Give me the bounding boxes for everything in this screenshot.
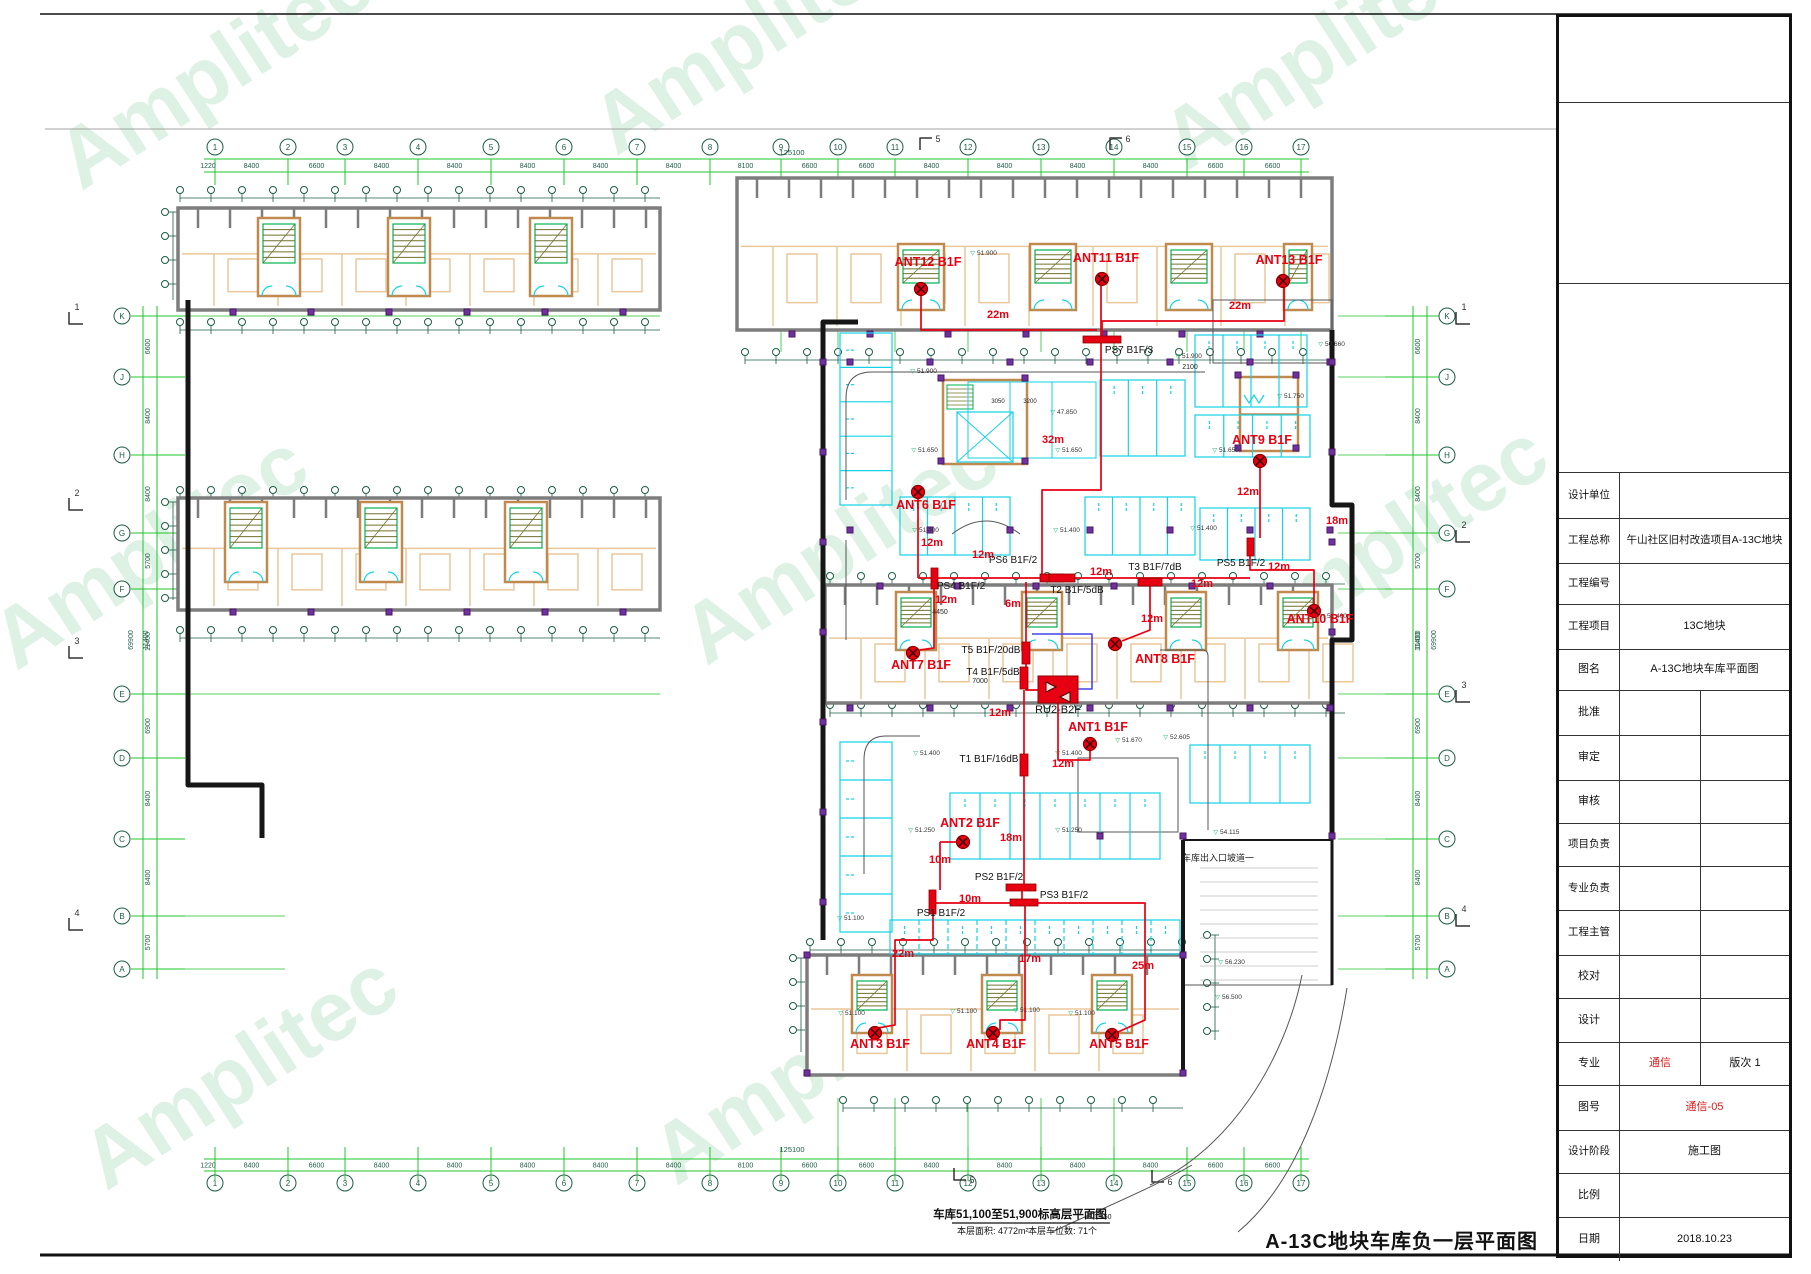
svg-text:6m: 6m (1005, 598, 1021, 610)
svg-text:8400: 8400 (997, 1163, 1013, 1170)
titleblock-label-项目负责: 项目负责 (1559, 823, 1620, 866)
svg-text:51.100: 51.100 (845, 1010, 865, 1017)
svg-text:51.100: 51.100 (957, 1008, 977, 1015)
svg-text:5700: 5700 (145, 935, 152, 951)
svg-text:14: 14 (1110, 143, 1119, 152)
antenna-label: ANT12 B1F (895, 255, 962, 269)
svg-text:13: 13 (1037, 143, 1046, 152)
svg-text:12m: 12m (1268, 561, 1290, 573)
svg-text:12m: 12m (1237, 486, 1259, 498)
svg-text:K: K (119, 312, 125, 321)
svg-text:1220: 1220 (200, 163, 216, 170)
svg-text:2: 2 (1461, 520, 1466, 530)
device-label: PS4 B1F/2 (937, 581, 986, 592)
svg-text:51.400: 51.400 (1062, 750, 1082, 757)
svg-text:G: G (119, 529, 125, 538)
device-PS7: PS7 B1F/3 (1083, 336, 1154, 356)
svg-text:22m: 22m (1229, 300, 1251, 312)
device-label: T4 B1F/5dB (966, 667, 1020, 678)
svg-text:8400: 8400 (520, 1163, 536, 1170)
titleblock-value-批准-1 (1620, 690, 1701, 735)
svg-text:8100: 8100 (738, 163, 754, 170)
titleblock-value-项目负责-2 (1701, 823, 1789, 866)
svg-text:8400: 8400 (145, 870, 152, 886)
svg-text:▽: ▽ (1218, 960, 1223, 966)
svg-text:8400: 8400 (1415, 791, 1422, 807)
device-label: PS6 B1F/2 (989, 555, 1038, 566)
svg-text:6600: 6600 (1265, 163, 1281, 170)
titleblock-value-工程项目: 13C地块 (1620, 604, 1789, 649)
svg-text:51.100: 51.100 (844, 915, 864, 922)
svg-text:12m: 12m (989, 707, 1011, 719)
titleblock-label-工程项目: 工程项目 (1559, 604, 1620, 649)
svg-text:1:150: 1:150 (1094, 1214, 1112, 1221)
svg-text:1220: 1220 (200, 1163, 216, 1170)
titleblock-value-工程总称: 午山社区旧村改造项目A-13C地块 (1620, 518, 1789, 563)
svg-text:69900: 69900 (128, 630, 135, 650)
svg-text:6600: 6600 (1208, 1163, 1224, 1170)
svg-text:125100: 125100 (779, 1145, 804, 1154)
titleblock-label-工程总称: 工程总称 (1559, 518, 1620, 563)
svg-text:3200: 3200 (1023, 399, 1037, 405)
svg-text:10m: 10m (959, 893, 981, 905)
svg-text:6: 6 (1167, 1177, 1172, 1187)
titleblock-value-审定-1 (1620, 735, 1701, 780)
device-label: PS2 B1F/2 (975, 872, 1024, 883)
svg-text:6600: 6600 (1415, 339, 1422, 355)
svg-text:18m: 18m (1000, 832, 1022, 844)
svg-text:1: 1 (1461, 302, 1466, 312)
svg-text:8400: 8400 (924, 163, 940, 170)
titleblock-label-审核: 审核 (1559, 780, 1620, 823)
svg-text:D: D (1444, 754, 1450, 763)
svg-text:47.850: 47.850 (1057, 409, 1077, 416)
svg-text:7: 7 (635, 143, 640, 152)
svg-text:11400: 11400 (1415, 630, 1422, 649)
titleblock-value-设计阶段: 施工图 (1620, 1130, 1789, 1173)
svg-text:6600: 6600 (859, 1163, 875, 1170)
caption-title: 车库51,100至51,900标高层平面图 (933, 1207, 1107, 1221)
titleblock-label-设计单位: 设计单位 (1559, 472, 1620, 518)
svg-text:J: J (1445, 373, 1449, 382)
svg-text:A: A (1444, 965, 1450, 974)
svg-text:4: 4 (74, 908, 79, 918)
antenna-ANT2: ANT2 B1F (940, 816, 1000, 849)
svg-text:8400: 8400 (1143, 1163, 1159, 1170)
svg-text:51.100: 51.100 (1075, 1010, 1095, 1017)
antenna-label: ANT11 B1F (1073, 251, 1139, 265)
svg-text:8400: 8400 (145, 486, 152, 502)
titleblock-value-设计-2 (1701, 998, 1789, 1042)
svg-text:8400: 8400 (447, 163, 463, 170)
svg-text:8400: 8400 (374, 1163, 390, 1170)
svg-text:56.500: 56.500 (1222, 994, 1242, 1001)
svg-text:E: E (1444, 690, 1449, 699)
svg-text:▽: ▽ (908, 828, 913, 834)
titleblock-value-工程主管-2 (1701, 910, 1789, 955)
floor-plan-svg: AmplitecAmplitecAmplitecAmplitecAmplitec… (0, 0, 1811, 1274)
svg-text:11: 11 (891, 143, 900, 152)
svg-text:H: H (1444, 451, 1450, 460)
svg-text:5700: 5700 (1415, 553, 1422, 569)
titleblock-label-日期: 日期 (1559, 1217, 1620, 1261)
svg-text:11400: 11400 (143, 630, 150, 649)
svg-text:51.100: 51.100 (1020, 1007, 1040, 1014)
titleblock-label-专业: 专业 (1559, 1042, 1620, 1085)
titleblock-value-审核-1 (1620, 780, 1701, 823)
device-label: PS5 B1F/2 (1217, 558, 1266, 569)
svg-text:50.660: 50.660 (1325, 341, 1345, 348)
svg-text:C: C (119, 835, 125, 844)
titleblock-value-图名: A-13C地块车库平面图 (1620, 649, 1789, 690)
svg-text:51.650: 51.650 (1062, 447, 1082, 454)
svg-text:6600: 6600 (309, 163, 325, 170)
svg-text:▽: ▽ (950, 1009, 955, 1015)
svg-text:6600: 6600 (802, 163, 818, 170)
titleblock-value-专业-1: 通信 (1620, 1042, 1701, 1085)
svg-text:22m: 22m (892, 948, 914, 960)
titleblock-value-比例 (1620, 1173, 1789, 1217)
titleblock-label-审定: 审定 (1559, 735, 1620, 780)
caption-area: 本层面积: 4772m² (957, 1225, 1029, 1236)
svg-text:▽: ▽ (970, 251, 975, 257)
titleblock-label-图号: 图号 (1559, 1085, 1620, 1130)
titleblock-label-比例: 比例 (1559, 1173, 1620, 1217)
svg-text:8400: 8400 (145, 408, 152, 424)
svg-text:4: 4 (1461, 904, 1466, 914)
device-label: T1 B1F/16dB (960, 754, 1019, 765)
svg-text:8400: 8400 (244, 163, 260, 170)
svg-text:▽: ▽ (1055, 448, 1060, 454)
device-label: T5 B1F/20dB (962, 645, 1021, 656)
svg-text:69900: 69900 (1431, 630, 1438, 650)
svg-text:8400: 8400 (666, 163, 682, 170)
svg-text:▽: ▽ (912, 528, 917, 534)
svg-text:B: B (1444, 912, 1449, 921)
titleblock-value-校对-1 (1620, 955, 1701, 998)
titleblock-label-图名: 图名 (1559, 649, 1620, 690)
antenna-label: ANT6 B1F (896, 498, 956, 512)
svg-text:6600: 6600 (309, 1163, 325, 1170)
svg-text:8400: 8400 (1070, 1163, 1086, 1170)
svg-text:2: 2 (286, 143, 291, 152)
caption: 车库51,100至51,900标高层平面图1:150本层面积: 4772m²本层… (933, 1207, 1112, 1236)
svg-text:17m: 17m (1019, 953, 1041, 965)
svg-text:▽: ▽ (1013, 1008, 1018, 1014)
svg-text:8400: 8400 (924, 1163, 940, 1170)
svg-text:5: 5 (935, 134, 940, 144)
svg-text:B: B (119, 912, 124, 921)
svg-text:52.605: 52.605 (1170, 734, 1190, 741)
svg-text:12m: 12m (1090, 566, 1112, 578)
svg-text:6600: 6600 (145, 339, 152, 355)
svg-text:6600: 6600 (1265, 1163, 1281, 1170)
svg-text:▽: ▽ (1277, 394, 1282, 400)
antenna-label: ANT10 B1F (1287, 612, 1354, 626)
svg-text:▽: ▽ (1068, 1011, 1073, 1017)
svg-text:6: 6 (562, 143, 567, 152)
svg-text:12m: 12m (1191, 578, 1213, 590)
svg-text:8400: 8400 (593, 163, 609, 170)
device-PS2: PS2 B1F/2 (975, 872, 1036, 891)
drawing-sheet: AmplitecAmplitecAmplitecAmplitecAmplitec… (0, 0, 1811, 1274)
antenna-label: ANT8 B1F (1135, 652, 1195, 666)
svg-text:1: 1 (74, 302, 79, 312)
svg-text:▽: ▽ (1055, 828, 1060, 834)
titleblock-value-审定-2 (1701, 735, 1789, 780)
svg-text:1: 1 (213, 143, 218, 152)
svg-text:▽: ▽ (1212, 448, 1217, 454)
svg-text:51.650: 51.650 (918, 447, 938, 454)
svg-text:8400: 8400 (145, 791, 152, 807)
svg-text:12m: 12m (935, 594, 957, 606)
svg-text:51.900: 51.900 (917, 368, 937, 375)
svg-text:▽: ▽ (1190, 526, 1195, 532)
svg-text:22m: 22m (987, 309, 1009, 321)
svg-text:51.650: 51.650 (1219, 447, 1239, 454)
svg-text:51.400: 51.400 (920, 750, 940, 757)
svg-text:F: F (120, 585, 125, 594)
svg-text:2100: 2100 (1182, 364, 1198, 371)
svg-text:16: 16 (1240, 143, 1249, 152)
svg-text:3: 3 (1461, 680, 1466, 690)
device-PS4: PS4 B1F/2 (931, 568, 986, 592)
titleblock-top-cell-1 (1559, 102, 1789, 283)
svg-text:▽: ▽ (1215, 995, 1220, 1001)
titleblock-value-设计单位 (1620, 472, 1789, 518)
svg-text:5700: 5700 (145, 553, 152, 569)
svg-text:6600: 6600 (859, 163, 875, 170)
titleblock-value-专业-2: 版次 1 (1701, 1042, 1789, 1085)
svg-text:6: 6 (1125, 134, 1130, 144)
antenna-label: ANT4 B1F (966, 1037, 1026, 1051)
svg-text:8400: 8400 (1415, 408, 1422, 424)
titleblock-top-cell-2 (1559, 283, 1789, 472)
titleblock-value-专业负责-2 (1701, 866, 1789, 910)
device-label: PS3 B1F/2 (1040, 890, 1089, 901)
svg-text:8400: 8400 (1070, 163, 1086, 170)
svg-text:51.400: 51.400 (1060, 527, 1080, 534)
antenna-label: ANT9 B1F (1232, 433, 1292, 447)
main-title: A-13C地块车库负一层平面图 (1265, 1225, 1538, 1254)
svg-text:5: 5 (489, 143, 494, 152)
svg-text:6600: 6600 (802, 1163, 818, 1170)
titleblock-label-设计: 设计 (1559, 998, 1620, 1042)
svg-text:6600: 6600 (1208, 163, 1224, 170)
titleblock-label-批准: 批准 (1559, 690, 1620, 735)
antenna-label: ANT2 B1F (940, 816, 1000, 830)
svg-text:K: K (1444, 312, 1450, 321)
svg-text:56.230: 56.230 (1225, 959, 1245, 966)
svg-text:▽: ▽ (1115, 738, 1120, 744)
svg-text:7000: 7000 (972, 678, 988, 685)
svg-text:125100: 125100 (779, 148, 804, 157)
svg-text:12m: 12m (1052, 758, 1074, 770)
svg-text:12: 12 (964, 143, 973, 152)
repeater-RU2: RU2-B2F (1035, 676, 1081, 716)
titleblock-label-设计阶段: 设计阶段 (1559, 1130, 1620, 1173)
svg-text:H: H (119, 451, 125, 460)
titleblock-label-工程编号: 工程编号 (1559, 563, 1620, 604)
titleblock-value-图号: 通信-05 (1620, 1085, 1789, 1130)
svg-text:2: 2 (74, 488, 79, 498)
svg-text:8400: 8400 (997, 163, 1013, 170)
svg-text:8400: 8400 (1143, 163, 1159, 170)
svg-text:▽: ▽ (1213, 830, 1218, 836)
caption-stalls: 本层车位数: 71个 (1028, 1225, 1097, 1236)
svg-text:8400: 8400 (1415, 486, 1422, 502)
svg-text:51.750: 51.750 (1284, 393, 1304, 400)
svg-text:51.400: 51.400 (1197, 525, 1217, 532)
antenna-label: ANT5 B1F (1089, 1037, 1149, 1051)
svg-text:▽: ▽ (1175, 354, 1180, 360)
svg-text:51.250: 51.250 (1062, 827, 1082, 834)
titleblock-label-校对: 校对 (1559, 955, 1620, 998)
svg-text:▽: ▽ (838, 1011, 843, 1017)
svg-text:8400: 8400 (244, 1163, 260, 1170)
svg-text:▽: ▽ (1318, 342, 1323, 348)
watermark-text: Amplitec (575, 0, 924, 172)
svg-text:J: J (120, 373, 124, 382)
antenna-ANT1: ANT1 B1F (1068, 720, 1128, 751)
svg-text:▽: ▽ (910, 369, 915, 375)
svg-text:3: 3 (74, 636, 79, 646)
device-T1: T1 B1F/16dB (960, 754, 1028, 776)
svg-text:17: 17 (1297, 143, 1306, 152)
svg-text:18m: 18m (1326, 515, 1348, 527)
svg-text:51.900: 51.900 (977, 250, 997, 257)
titleblock-value-工程主管-1 (1620, 910, 1701, 955)
device-label: PS1 B1F/2 (917, 908, 966, 919)
titleblock-top-cell-0 (1559, 17, 1789, 102)
svg-text:6900: 6900 (145, 718, 152, 734)
svg-text:▽: ▽ (1163, 735, 1168, 741)
svg-text:3: 3 (343, 143, 348, 152)
svg-text:▽: ▽ (913, 751, 918, 757)
svg-text:5: 5 (969, 1175, 974, 1185)
device-label: T2 B1F/5dB (1050, 585, 1104, 596)
antenna-label: ANT3 B1F (850, 1037, 910, 1051)
svg-text:8400: 8400 (666, 1163, 682, 1170)
svg-text:E: E (119, 690, 124, 699)
svg-text:▽: ▽ (911, 448, 916, 454)
svg-text:A: A (119, 965, 125, 974)
titleblock-value-批准-2 (1701, 690, 1789, 735)
svg-text:10m: 10m (929, 854, 951, 866)
svg-text:8400: 8400 (593, 1163, 609, 1170)
antenna-label: ANT1 B1F (1068, 720, 1128, 734)
repeater-label: RU2-B2F (1035, 704, 1081, 716)
antenna-label: ANT13 B1F (1256, 253, 1323, 267)
svg-text:8: 8 (708, 143, 713, 152)
svg-text:F: F (1445, 585, 1450, 594)
svg-text:车库出入口坡道一: 车库出入口坡道一 (1182, 852, 1254, 863)
svg-text:▽: ▽ (837, 916, 842, 922)
svg-text:▽: ▽ (1053, 528, 1058, 534)
svg-text:8400: 8400 (1415, 870, 1422, 886)
svg-text:4: 4 (416, 143, 421, 152)
svg-text:12m: 12m (1141, 613, 1163, 625)
svg-text:51.670: 51.670 (1122, 737, 1142, 744)
svg-text:32m: 32m (1042, 434, 1064, 446)
svg-text:25m: 25m (1132, 960, 1154, 972)
svg-text:8400: 8400 (374, 163, 390, 170)
svg-text:3050: 3050 (991, 399, 1005, 405)
titleblock-value-设计-1 (1620, 998, 1701, 1042)
watermark-text: Amplitec (40, 0, 389, 207)
svg-text:12m: 12m (972, 549, 994, 561)
titleblock-value-审核-2 (1701, 780, 1789, 823)
device-label: PS7 B1F/3 (1105, 345, 1154, 356)
titleblock-value-工程编号 (1620, 563, 1789, 604)
svg-text:54.115: 54.115 (1220, 829, 1240, 836)
svg-text:C: C (1444, 835, 1450, 844)
svg-text:51.250: 51.250 (915, 827, 935, 834)
device-PS5: PS5 B1F/2 (1217, 538, 1266, 569)
antenna-label: ANT7 B1F (891, 658, 951, 672)
svg-text:G: G (1444, 529, 1450, 538)
titleblock-value-日期: 2018.10.23 (1620, 1217, 1789, 1261)
titleblock-value-项目负责-1 (1620, 823, 1701, 866)
svg-text:51.400: 51.400 (919, 527, 939, 534)
titleblock-value-校对-2 (1701, 955, 1789, 998)
svg-text:8400: 8400 (520, 163, 536, 170)
titleblock-label-工程主管: 工程主管 (1559, 910, 1620, 955)
svg-text:8100: 8100 (738, 1163, 754, 1170)
device-label: T3 B1F/7dB (1128, 562, 1182, 573)
svg-text:15: 15 (1183, 143, 1192, 152)
svg-text:12m: 12m (921, 537, 943, 549)
svg-text:51.900: 51.900 (1182, 353, 1202, 360)
svg-text:▽: ▽ (1050, 410, 1055, 416)
svg-text:6900: 6900 (1415, 718, 1422, 734)
svg-text:8400: 8400 (447, 1163, 463, 1170)
titleblock-label-专业负责: 专业负责 (1559, 866, 1620, 910)
svg-text:10: 10 (834, 143, 843, 152)
title-block: 设计单位工程总称午山社区旧村改造项目A-13C地块工程编号工程项目13C地块图名… (1556, 14, 1792, 1258)
titleblock-value-专业负责-1 (1620, 866, 1701, 910)
svg-text:D: D (119, 754, 125, 763)
svg-text:5700: 5700 (1415, 935, 1422, 951)
